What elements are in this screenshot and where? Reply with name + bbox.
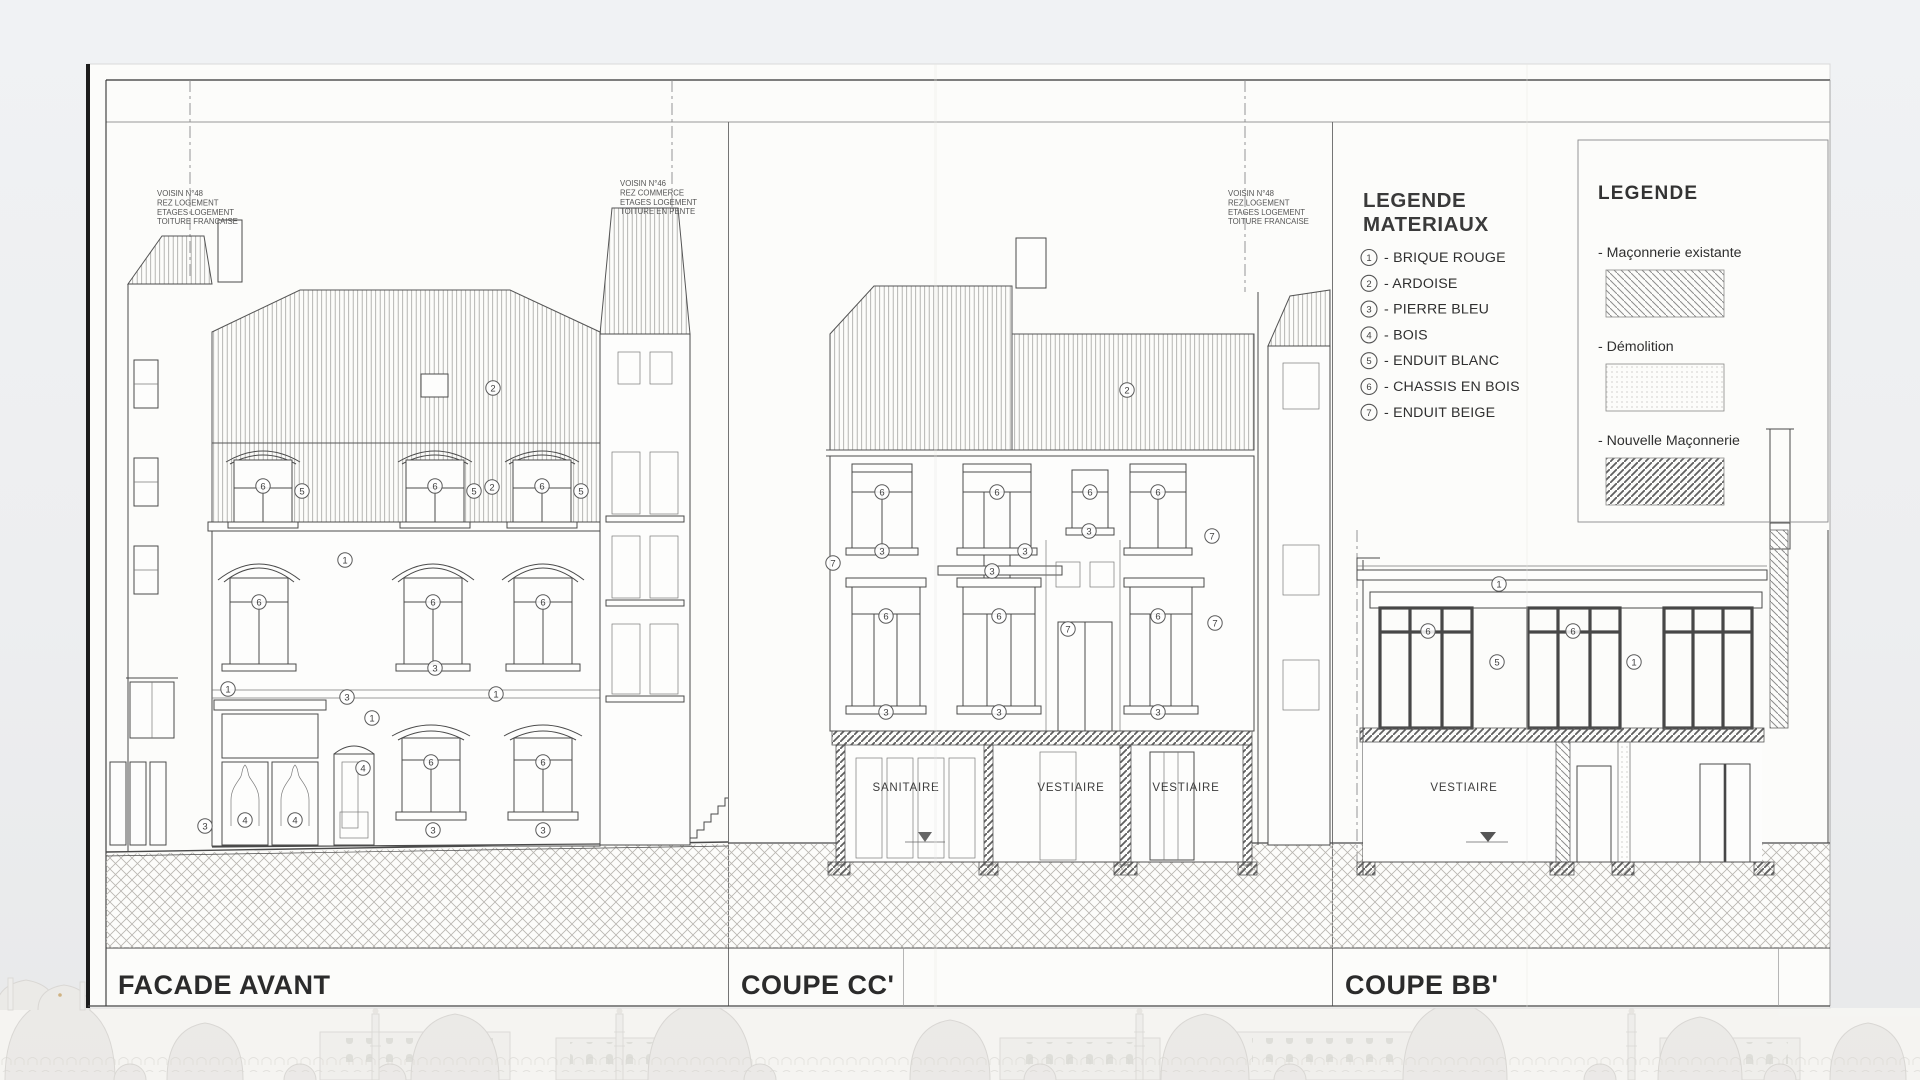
legend-symbol-label: - Maçonnerie existante <box>1598 245 1742 261</box>
balcony-slab <box>938 566 1062 575</box>
material-marker-number: 6 <box>1087 487 1092 498</box>
material-marker-number: 6 <box>539 481 544 492</box>
legend-item-number: 3 <box>1366 305 1371 316</box>
legend-materials-title-line2: MATERIAUX <box>1363 213 1489 236</box>
material-marker-number: 3 <box>1086 526 1091 537</box>
legend-item-label: - PIERRE BLEU <box>1384 302 1489 318</box>
material-marker-number: 6 <box>430 597 435 608</box>
legend-materials-title-line1: LEGENDE <box>1363 189 1466 212</box>
material-marker-number: 4 <box>242 815 247 826</box>
legend-item-number: 4 <box>1366 330 1371 341</box>
title-coupe-cc: COUPE CC' <box>741 970 894 1000</box>
material-marker-number: 3 <box>344 692 349 703</box>
material-marker-number: 3 <box>883 707 888 718</box>
legend-item-label: - BOIS <box>1384 327 1428 343</box>
legend-item-number: 1 <box>1366 253 1371 264</box>
material-marker-number: 1 <box>1631 657 1636 668</box>
material-marker-number: 7 <box>1209 531 1214 542</box>
floor-slab <box>832 731 1252 745</box>
material-marker-number: 6 <box>996 611 1001 622</box>
material-marker-number: 1 <box>1496 579 1501 590</box>
cc-neighbor-right <box>1258 290 1330 845</box>
material-marker-number: 1 <box>493 689 498 700</box>
material-marker-number: 3 <box>1022 546 1027 557</box>
legend-item-number: 7 <box>1366 408 1371 419</box>
shop-door-right <box>272 762 318 845</box>
material-marker-number: 5 <box>1494 657 1499 668</box>
material-marker-number: 4 <box>360 763 365 774</box>
material-marker-number: 3 <box>540 825 545 836</box>
material-marker-number: 1 <box>369 713 374 724</box>
material-marker-number: 1 <box>342 555 347 566</box>
drawing-sheet-canvas: LEGENDE MATERIAUX 1- BRIQUE ROUGE2- ARDO… <box>0 0 1920 1080</box>
chimney <box>1016 238 1046 288</box>
legend-item-number: 5 <box>1366 356 1371 367</box>
material-marker-number: 5 <box>471 486 476 497</box>
material-marker-number: 2 <box>489 482 494 493</box>
legend-symbol-label: - Démolition <box>1598 339 1674 355</box>
architectural-drawing-viewer: LEGENDE MATERIAUX 1- BRIQUE ROUGE2- ARDO… <box>0 0 1920 1080</box>
title-coupe-bb: COUPE BB' <box>1345 970 1498 1000</box>
material-marker-number: 3 <box>202 821 207 832</box>
material-marker-number: 3 <box>996 707 1001 718</box>
legend-item-label: - BRIQUE ROUGE <box>1384 250 1506 266</box>
cc-basement <box>828 731 1257 875</box>
legend-item-label: - ENDUIT BEIGE <box>1384 405 1495 421</box>
shop-door-left <box>222 762 268 845</box>
material-marker-number: 6 <box>540 757 545 768</box>
material-marker-number: 7 <box>1212 618 1217 629</box>
material-marker-number: 3 <box>879 546 884 557</box>
material-marker-number: 6 <box>432 481 437 492</box>
material-marker-number: 6 <box>879 487 884 498</box>
material-marker-number: 7 <box>830 558 835 569</box>
material-marker-number: 3 <box>430 825 435 836</box>
scan-streak <box>934 64 937 1008</box>
material-marker-number: 6 <box>1155 611 1160 622</box>
room-label: VESTIAIRE <box>1037 782 1104 794</box>
material-marker-number: 1 <box>225 684 230 695</box>
material-marker-number: 7 <box>1065 624 1070 635</box>
legend-symbols-title: LEGENDE <box>1598 183 1698 204</box>
legend-swatch-new <box>1606 458 1724 505</box>
bb-floor-slab <box>1360 728 1764 742</box>
material-marker-number: 5 <box>578 486 583 497</box>
material-marker-number: 3 <box>989 566 994 577</box>
material-marker-number: 6 <box>256 597 261 608</box>
sheet-left-border <box>86 64 90 1008</box>
title-facade-avant: FACADE AVANT <box>118 970 331 1000</box>
legend-item-number: 6 <box>1366 382 1371 393</box>
bb-top-beam <box>1357 570 1767 580</box>
bb-door <box>1577 766 1611 862</box>
mosque-arcade <box>0 1056 1920 1072</box>
material-marker-number: 6 <box>260 481 265 492</box>
material-marker-number: 6 <box>1570 626 1575 637</box>
material-marker-number: 6 <box>883 611 888 622</box>
roof-window <box>421 374 448 397</box>
room-label: VESTIAIRE <box>1430 782 1497 794</box>
material-marker-number: 4 <box>292 815 297 826</box>
legend-item-label: - CHASSIS EN BOIS <box>1384 379 1520 395</box>
material-marker-number: 5 <box>299 486 304 497</box>
legend-item-label: - ENDUIT BLANC <box>1384 353 1499 369</box>
material-marker-number: 2 <box>490 383 495 394</box>
material-marker-number: 6 <box>994 487 999 498</box>
legend-item-number: 2 <box>1366 279 1371 290</box>
legend-swatch-demolition <box>1606 364 1724 411</box>
legend-swatch-existing <box>1606 270 1724 317</box>
demolition-post <box>1618 742 1630 862</box>
scan-streak <box>1526 64 1528 1008</box>
room-label: VESTIAIRE <box>1152 782 1219 794</box>
room-label: SANITAIRE <box>872 782 939 794</box>
entrance-door <box>334 746 374 845</box>
bb-basement <box>1357 728 1774 875</box>
legend-symbol-label: - Nouvelle Maçonnerie <box>1598 433 1740 449</box>
material-marker-number: 3 <box>1155 707 1160 718</box>
material-marker-number: 2 <box>1124 385 1129 396</box>
material-marker-number: 6 <box>428 757 433 768</box>
material-marker-number: 6 <box>540 597 545 608</box>
material-marker-number: 3 <box>432 663 437 674</box>
material-marker-number: 6 <box>1425 626 1430 637</box>
legend-item-label: - ARDOISE <box>1384 276 1458 292</box>
material-marker-number: 6 <box>1155 487 1160 498</box>
bb-parapet <box>1370 592 1762 608</box>
